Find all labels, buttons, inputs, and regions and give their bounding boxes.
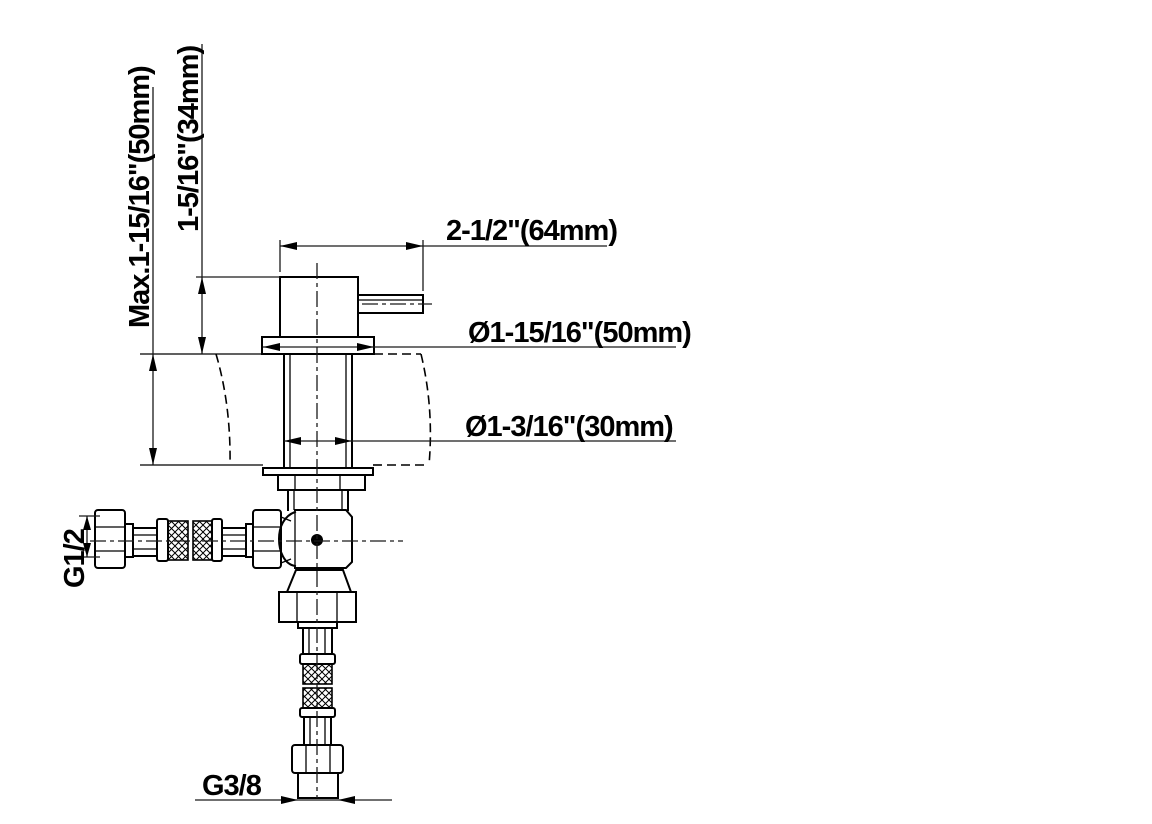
arrowhead <box>198 277 206 294</box>
inlet-hose-collar-3 <box>212 519 222 561</box>
arrowhead <box>406 242 423 250</box>
dim-label-max-deck-thickness: Max.1-15/16"(50mm) <box>124 66 156 328</box>
arrowhead <box>149 354 157 371</box>
mounting-shank <box>284 354 352 468</box>
under-deck-fixing <box>263 468 373 510</box>
dimension-labels: Max.1-15/16"(50mm) 1-5/16"(34mm) 2-1/2"(… <box>59 46 691 802</box>
faucet-body <box>280 277 358 337</box>
arrowhead <box>284 437 301 445</box>
inlet-hose-end-nut <box>95 510 125 568</box>
deck-break-line-right <box>421 354 430 465</box>
washer <box>263 468 373 475</box>
dim-label-outlet-thread-g38: G3/8 <box>202 770 262 802</box>
valve-lower-flare <box>287 570 351 592</box>
inlet-hose-collar-2 <box>157 519 168 561</box>
arrowhead <box>83 516 91 530</box>
inlet-hose-valve-nut <box>253 510 281 568</box>
arrowhead <box>149 448 157 465</box>
valve-body-outline <box>295 510 352 568</box>
faucet-body-group <box>262 277 423 354</box>
faucet-dimension-drawing: Max.1-15/16"(50mm) 1-5/16"(34mm) 2-1/2"(… <box>0 0 1152 824</box>
arrowhead <box>338 796 355 804</box>
mounting-nut <box>278 475 365 490</box>
deck-break-line-left <box>216 354 230 465</box>
arrowhead <box>357 343 374 351</box>
dim-label-body-height: 1-5/16"(34mm) <box>173 46 205 232</box>
dim-label-shank-diameter: Ø1-3/16"(30mm) <box>465 411 673 443</box>
arrowhead <box>280 242 297 250</box>
inlet-hose <box>95 510 281 568</box>
outlet-thread-port <box>298 773 338 798</box>
arrowhead <box>198 337 206 354</box>
arrowhead <box>263 343 280 351</box>
countertop-section <box>140 354 430 465</box>
dim-label-spout-length: 2-1/2"(64mm) <box>446 215 617 247</box>
dim-label-flange-diameter: Ø1-15/16"(50mm) <box>468 317 691 349</box>
drawing-canvas: Max.1-15/16"(50mm) 1-5/16"(34mm) 2-1/2"(… <box>0 0 1152 824</box>
arrowhead <box>335 437 352 445</box>
dim-label-inlet-thread-g12: G1/2 <box>59 529 91 588</box>
arrowhead <box>281 796 298 804</box>
